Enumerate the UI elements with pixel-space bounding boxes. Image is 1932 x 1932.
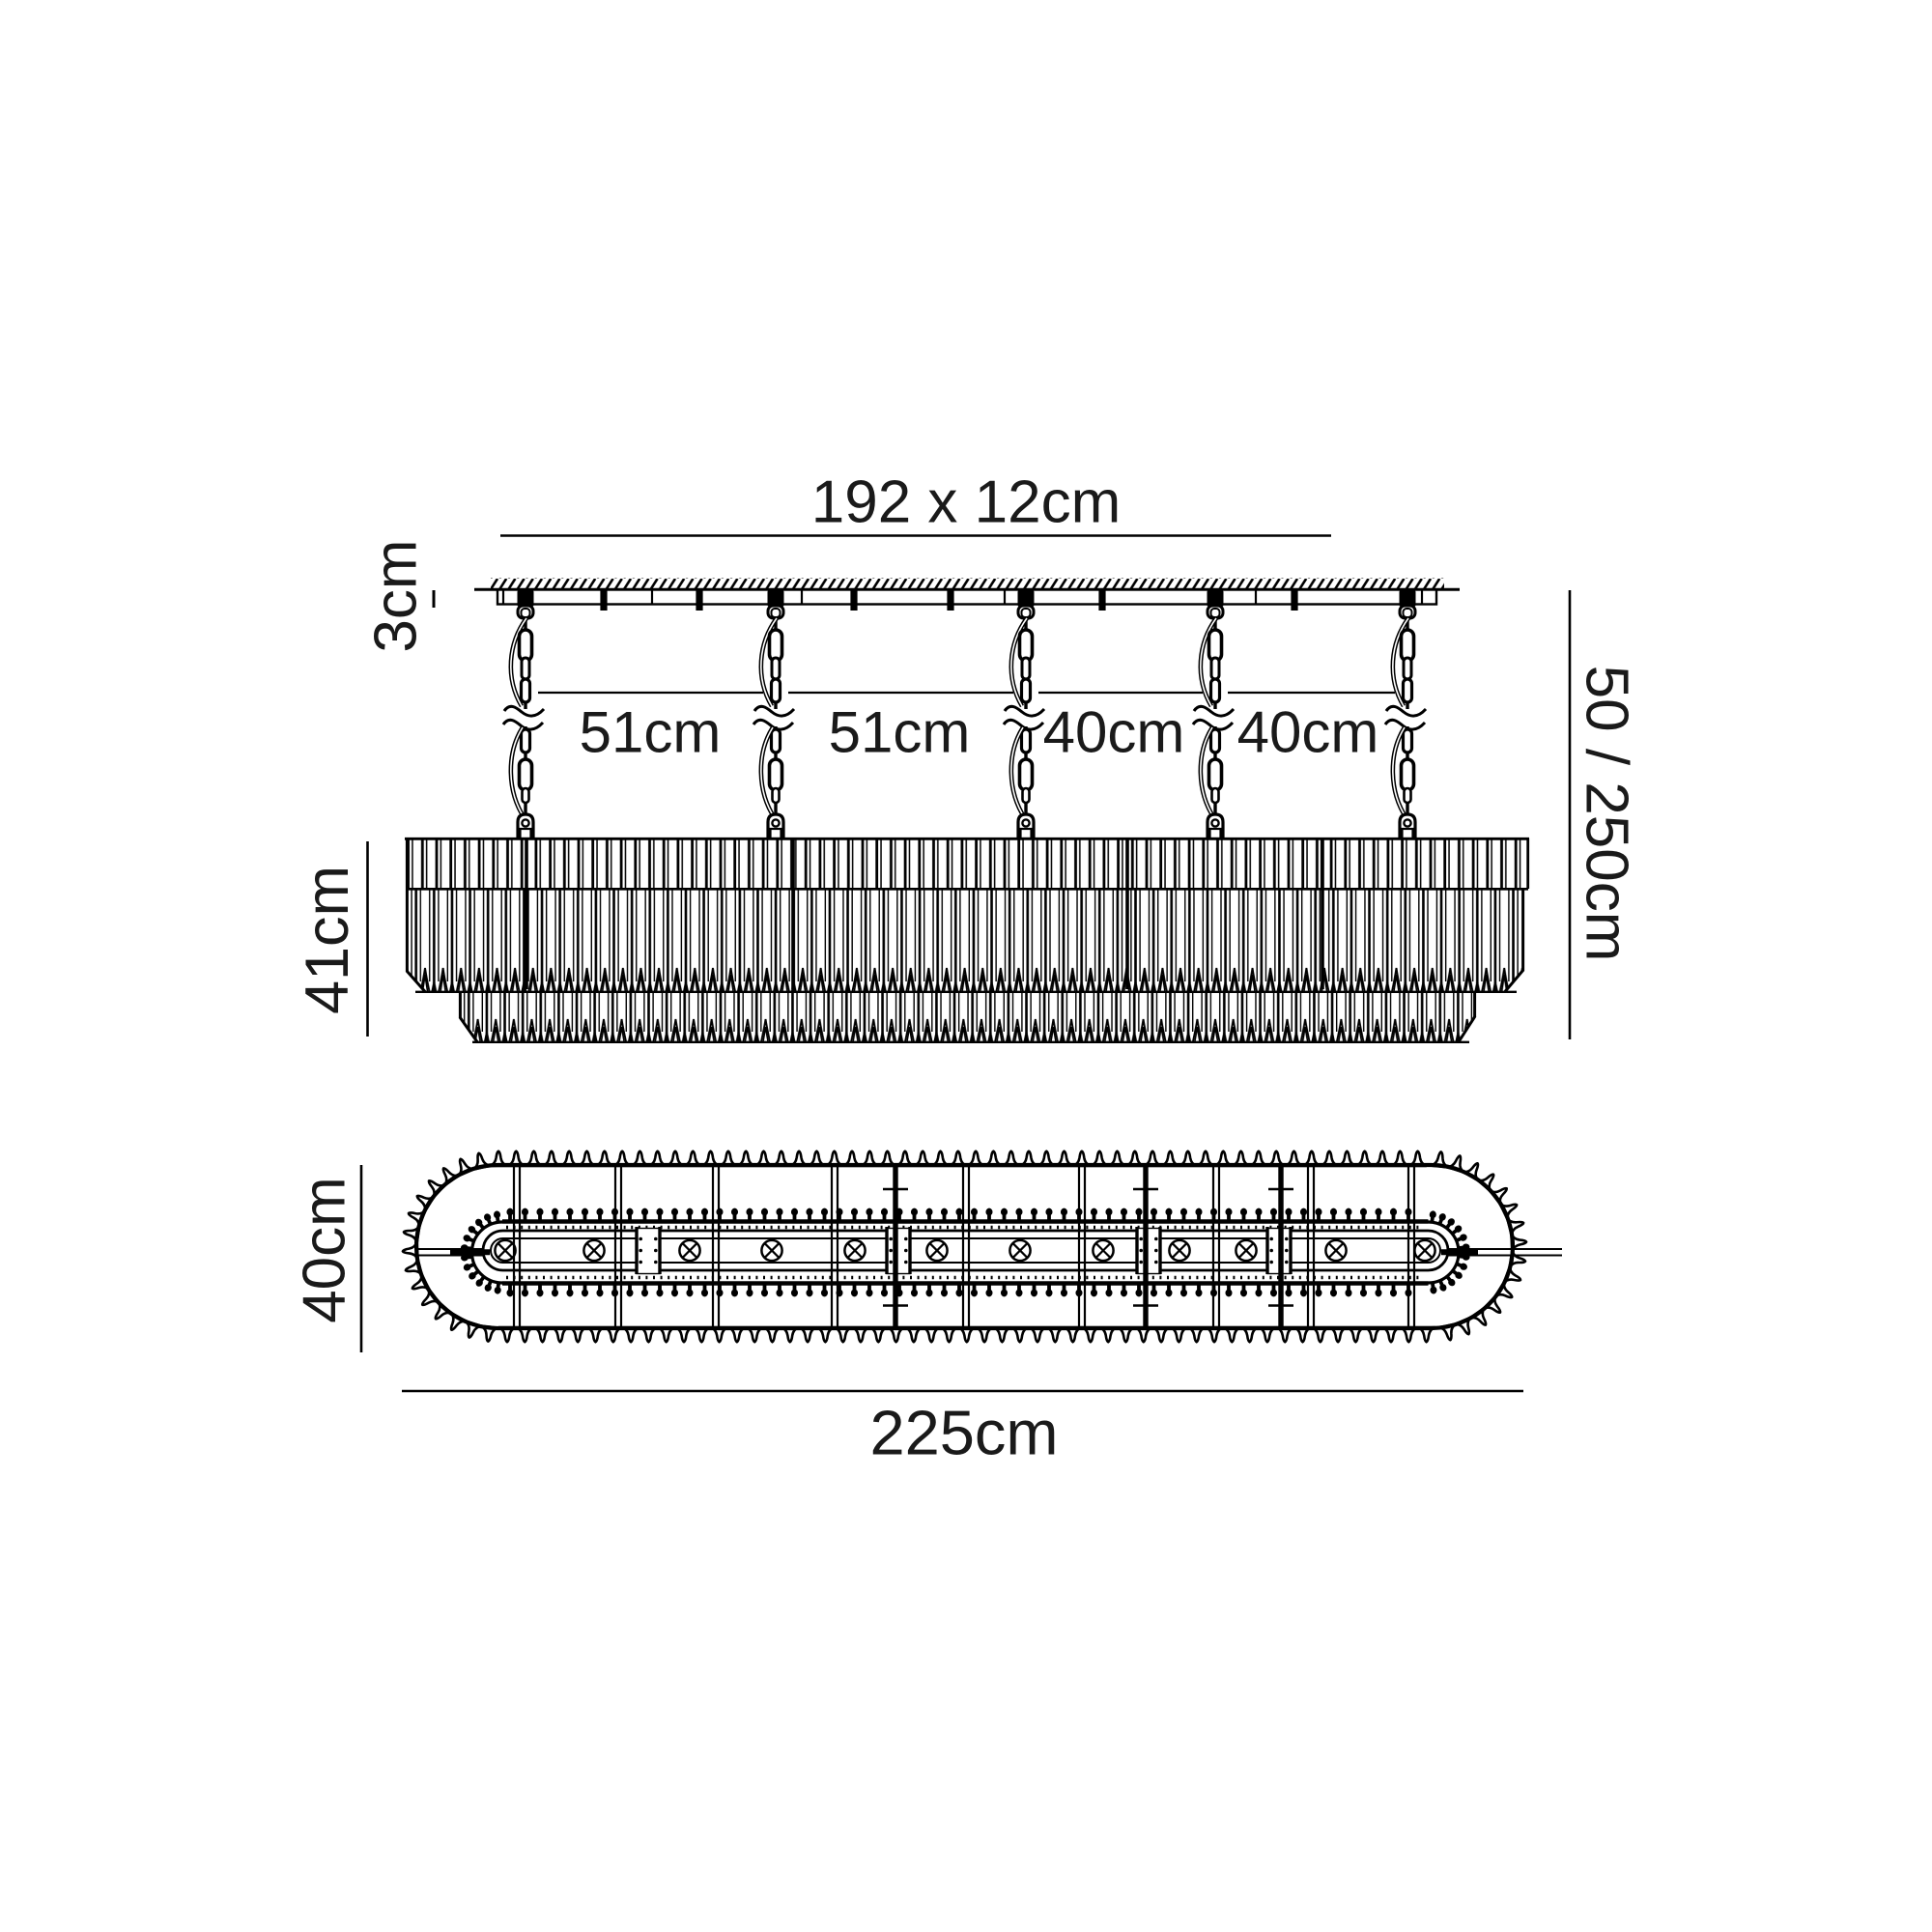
svg-text:225cm: 225cm (869, 1398, 1058, 1468)
svg-text:51cm: 51cm (829, 700, 971, 765)
svg-text:3cm: 3cm (363, 539, 430, 652)
svg-text:40cm: 40cm (1043, 700, 1185, 765)
svg-text:40cm: 40cm (1237, 700, 1379, 765)
svg-text:192 x 12cm: 192 x 12cm (811, 469, 1122, 536)
svg-text:51cm: 51cm (580, 700, 722, 765)
svg-text:41cm: 41cm (294, 866, 361, 1014)
svg-text:40cm: 40cm (292, 1177, 358, 1323)
svg-text:50 / 250cm: 50 / 250cm (1574, 666, 1640, 962)
